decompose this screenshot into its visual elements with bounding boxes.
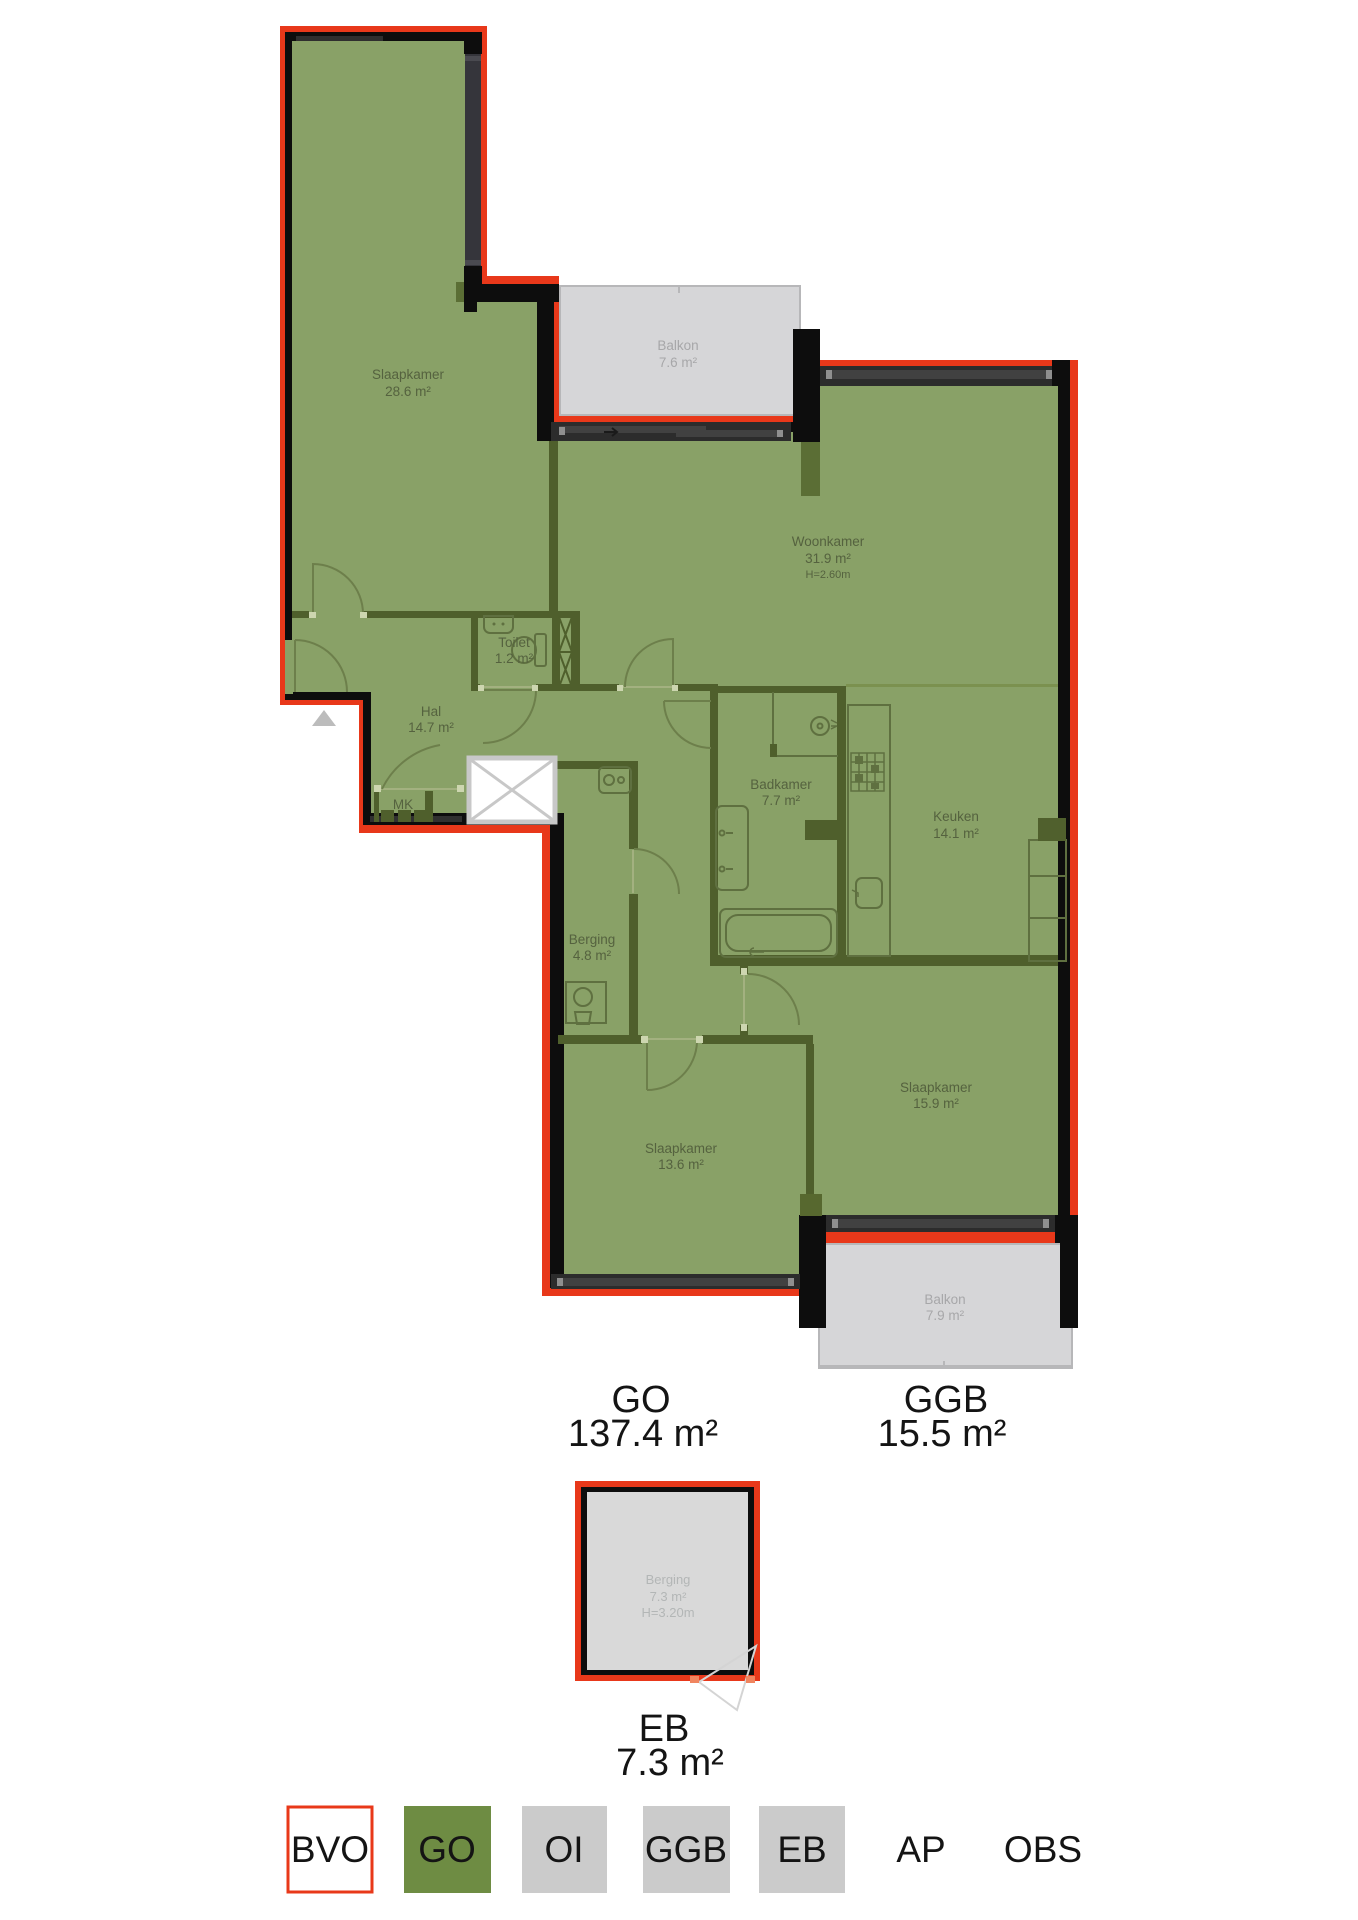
svg-text:OI: OI [544,1829,583,1870]
svg-text:H=3.20m: H=3.20m [641,1605,694,1620]
svg-text:Balkon: Balkon [924,1292,965,1307]
svg-text:AP: AP [896,1829,945,1870]
svg-text:Slaapkamer: Slaapkamer [900,1080,973,1095]
svg-text:14.7 m²: 14.7 m² [408,720,454,735]
svg-text:7.3 m²: 7.3 m² [650,1589,688,1604]
svg-text:31.9 m²: 31.9 m² [805,551,851,566]
svg-text:13.6 m²: 13.6 m² [658,1157,704,1172]
svg-text:Slaapkamer: Slaapkamer [645,1141,718,1156]
svg-text:Berging: Berging [569,932,616,947]
svg-text:H=2.60m: H=2.60m [806,569,851,581]
svg-text:GGB: GGB [645,1829,727,1870]
svg-text:Toilet: Toilet [498,635,530,650]
svg-text:1.2 m²: 1.2 m² [495,651,534,666]
svg-text:OBS: OBS [1004,1829,1082,1870]
svg-text:Slaapkamer: Slaapkamer [372,367,445,382]
svg-text:Woonkamer: Woonkamer [792,534,865,549]
svg-text:Badkamer: Badkamer [750,777,812,792]
svg-text:14.1 m²: 14.1 m² [933,826,979,841]
svg-text:7.6 m²: 7.6 m² [659,355,698,370]
svg-text:Balkon: Balkon [657,338,698,353]
svg-text:EB: EB [777,1829,826,1870]
svg-text:7.9 m²: 7.9 m² [926,1308,965,1323]
svg-text:BVO: BVO [291,1829,369,1870]
svg-text:28.6 m²: 28.6 m² [385,384,431,399]
svg-text:7.3 m²: 7.3 m² [616,1742,724,1784]
svg-text:15.9 m²: 15.9 m² [913,1096,959,1111]
svg-text:15.5 m²: 15.5 m² [878,1413,1007,1455]
svg-text:GO: GO [418,1829,476,1870]
svg-text:MK: MK [393,797,413,812]
svg-text:137.4 m²: 137.4 m² [568,1413,718,1455]
svg-text:4.8 m²: 4.8 m² [573,948,612,963]
svg-text:Hal: Hal [421,704,441,719]
svg-text:7.7 m²: 7.7 m² [762,793,801,808]
svg-text:Berging: Berging [646,1572,691,1587]
svg-text:Keuken: Keuken [933,809,979,824]
